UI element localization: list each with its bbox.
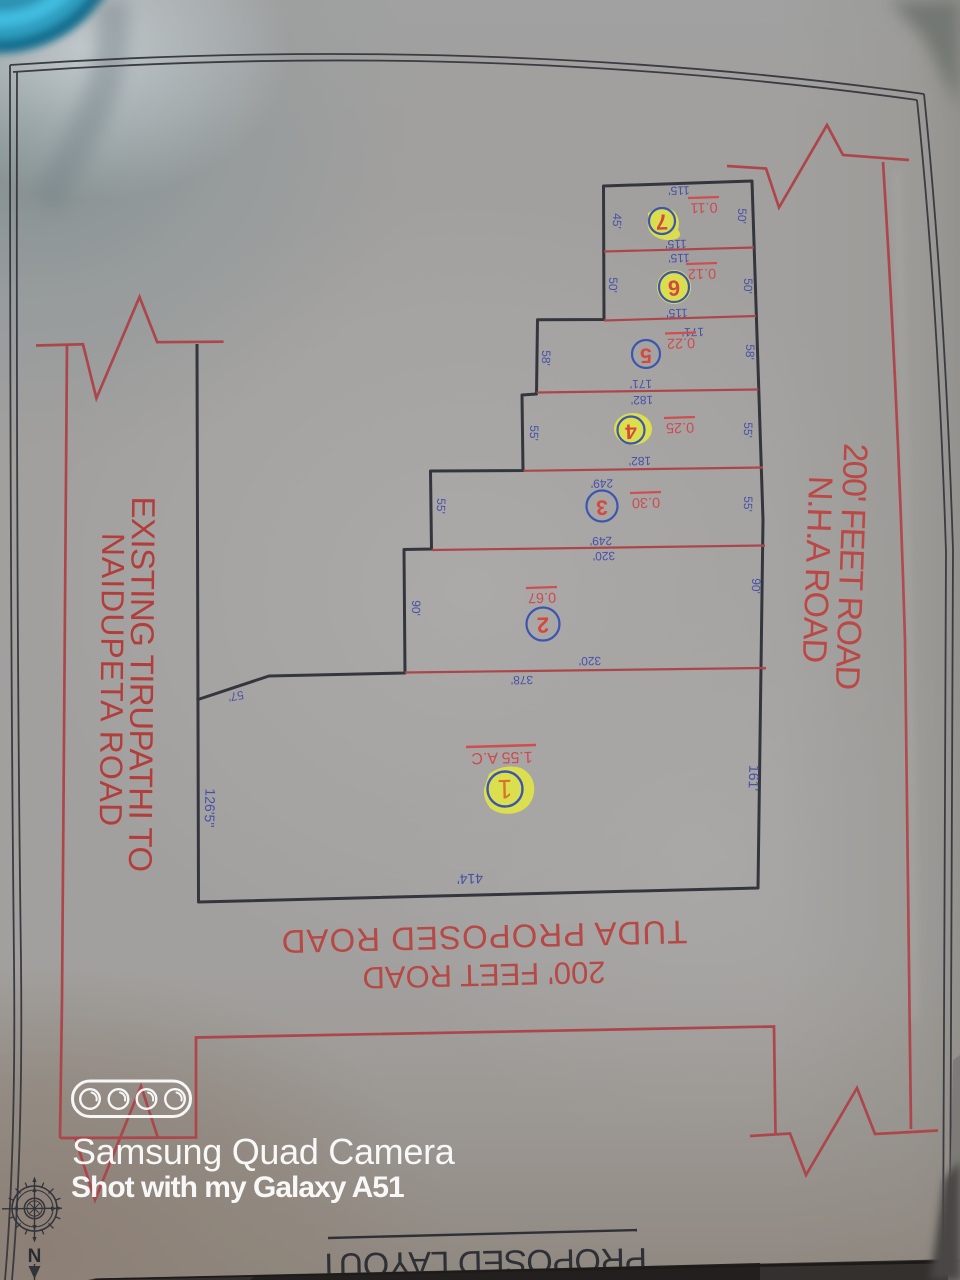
svg-text:0.30: 0.30 — [632, 494, 661, 511]
svg-text:0.22: 0.22 — [667, 334, 696, 351]
svg-text:0.67: 0.67 — [528, 589, 557, 606]
svg-text:171': 171' — [630, 377, 653, 392]
svg-text:182': 182' — [631, 393, 654, 408]
svg-text:50': 50' — [735, 208, 749, 224]
svg-text:45': 45' — [610, 213, 624, 229]
svg-text:3: 3 — [596, 495, 608, 518]
svg-text:0.25: 0.25 — [666, 419, 695, 436]
svg-text:55': 55' — [741, 496, 755, 512]
svg-text:5: 5 — [640, 343, 653, 366]
svg-text:55': 55' — [741, 422, 755, 438]
svg-text:2: 2 — [537, 612, 550, 637]
svg-text:6: 6 — [668, 275, 681, 300]
svg-text:NAIDUPETA ROAD: NAIDUPETA ROAD — [93, 533, 132, 828]
svg-text:50': 50' — [741, 278, 755, 294]
svg-text:Samsung Quad Camera: Samsung Quad Camera — [72, 1131, 456, 1172]
svg-text:N: N — [28, 1246, 42, 1267]
svg-text:126'5'': 126'5'' — [201, 788, 218, 828]
svg-text:55': 55' — [527, 425, 541, 441]
svg-text:0.11: 0.11 — [690, 199, 718, 216]
svg-text:249': 249' — [590, 534, 613, 549]
svg-text:N.H.A ROAD: N.H.A ROAD — [795, 475, 839, 663]
svg-text:200' FEET ROAD: 200' FEET ROAD — [362, 955, 606, 996]
svg-text:414': 414' — [457, 871, 483, 888]
svg-text:161': 161' — [746, 765, 763, 791]
svg-text:320': 320' — [593, 549, 616, 564]
svg-text:90': 90' — [409, 600, 423, 616]
svg-text:182': 182' — [629, 454, 652, 469]
svg-text:7: 7 — [656, 209, 669, 234]
svg-text:115': 115' — [666, 306, 688, 321]
svg-text:58': 58' — [743, 344, 757, 360]
svg-text:90': 90' — [749, 578, 763, 594]
svg-text:58': 58' — [539, 350, 553, 366]
svg-text:0.12: 0.12 — [688, 265, 717, 282]
svg-text:1: 1 — [497, 774, 513, 804]
svg-text:115': 115' — [668, 183, 690, 198]
svg-text:320': 320' — [579, 654, 602, 669]
svg-text:4: 4 — [625, 419, 638, 442]
svg-text:1.55 A.C: 1.55 A.C — [471, 748, 533, 767]
svg-text:249': 249' — [591, 476, 614, 491]
svg-text:50': 50' — [606, 277, 620, 293]
svg-text:57': 57' — [227, 688, 245, 705]
svg-text:378': 378' — [511, 673, 534, 688]
svg-text:Shot with my Galaxy A51: Shot with my Galaxy A51 — [71, 1171, 404, 1204]
svg-text:55': 55' — [434, 498, 448, 514]
